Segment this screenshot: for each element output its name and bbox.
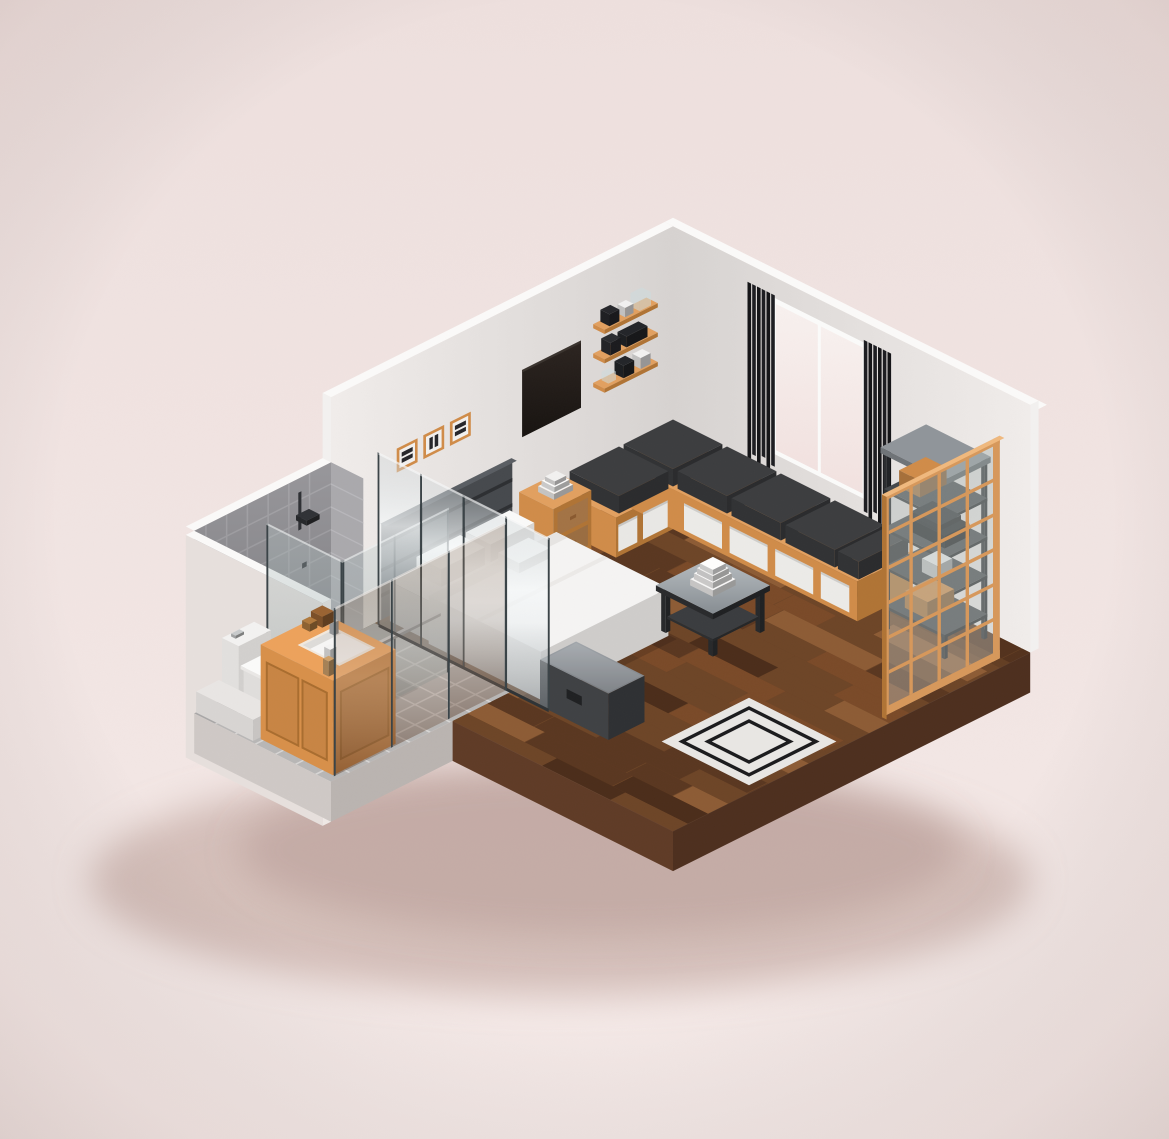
render-stage	[0, 0, 1169, 1139]
isometric-room-render	[0, 0, 1169, 1139]
finish-overlay	[0, 0, 1169, 1139]
